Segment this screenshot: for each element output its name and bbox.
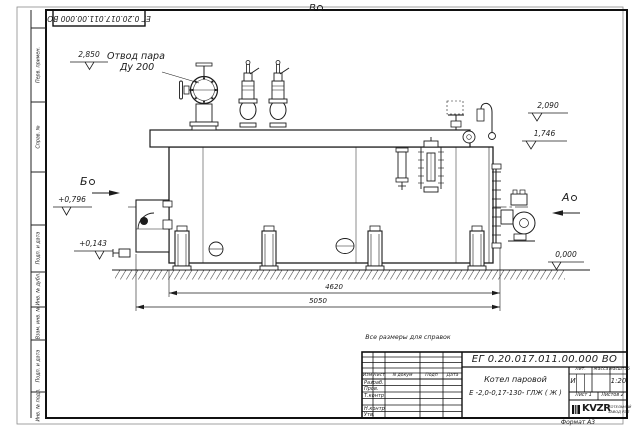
lit-value: И xyxy=(569,378,577,385)
margin-label-sprav-no: Справ. № xyxy=(36,125,41,148)
safety-valve-2 xyxy=(269,61,289,128)
sig-prov: Пров. xyxy=(364,387,379,392)
margin-label-inv-podl: Инв. № подл. xyxy=(36,388,41,421)
drawing-linework xyxy=(0,0,644,430)
header-podp: Подп xyxy=(420,374,443,379)
view-index-circle xyxy=(571,195,577,201)
boiler-body xyxy=(150,130,493,263)
burner-assembly xyxy=(492,164,535,248)
company-line2: ЗАВОД РЭП xyxy=(608,411,629,415)
sig-nkontr: Н.контр xyxy=(364,407,385,412)
view-label-top: В xyxy=(309,4,323,15)
front-box xyxy=(113,200,172,257)
scale-header: Масштаб xyxy=(609,368,627,373)
sheet-cell: Лист 1 xyxy=(569,393,598,398)
sig-tkontr: Т.контр xyxy=(364,394,384,399)
logo-icon xyxy=(572,405,580,414)
sig-razrab: Разраб. xyxy=(364,381,384,386)
title-doc-number: ЕГ 0.20.017.011.00.000 ВО xyxy=(462,355,627,366)
format-note: Формат А3 xyxy=(548,420,608,426)
reference-note: Все размеры для справок xyxy=(362,335,454,342)
margin-label-podp-data-1: Подп. и дата xyxy=(36,232,41,265)
view-index-circle xyxy=(89,179,95,185)
logo-text: KVZR xyxy=(582,404,610,415)
header-data: Дата xyxy=(443,374,462,379)
elevation-1746: 1,746 xyxy=(522,130,567,138)
view-label-right: А xyxy=(562,192,577,204)
safety-valves xyxy=(239,61,289,128)
view-letter-v: В xyxy=(309,3,316,14)
sig-utv: Утв. xyxy=(364,413,375,418)
scale-value: 1:20 xyxy=(610,378,627,385)
view-index-circle xyxy=(317,5,323,11)
margin-label-perv-primen: Перв. примен. xyxy=(36,47,41,83)
elevation-0000: 0,000 xyxy=(547,251,585,259)
elevation-plus0796: +0,796 xyxy=(52,196,92,204)
ground-line xyxy=(112,270,590,280)
dimension-4620: 4620 xyxy=(304,284,364,291)
safety-valve-1 xyxy=(239,61,259,128)
drawing-sheet: ЕГ 0.20.017.011.00.000 ВО Перв. примен. … xyxy=(0,0,644,430)
steam-callout-line1: Отвод пара xyxy=(107,52,165,62)
elevation-plus0143: +0,143 xyxy=(73,240,113,248)
elevation-2850: 2,850 xyxy=(70,51,108,59)
view-label-left: Б xyxy=(80,176,95,188)
title-name-line1: Котел паровой xyxy=(462,376,569,384)
margin-label-podp-data-2: Подп. и дата xyxy=(36,350,41,383)
steam-callout-line2: Ду 200 xyxy=(120,63,154,73)
sheets-cell: Листов 2 xyxy=(598,393,627,398)
top-stamp-text: ЕГ 0.20.017.011.00.000 ВО xyxy=(47,14,150,22)
view-letter-a: А xyxy=(562,191,570,204)
margin-label-vzam-inv: Взам. инв. № xyxy=(36,307,41,340)
margin-label-inv-dubl: Инв. № дубл. xyxy=(36,273,41,306)
steam-valve xyxy=(180,63,219,130)
lit-header: Лит. xyxy=(569,368,592,373)
mass-header: Масса xyxy=(592,368,610,373)
dimension-5050: 5050 xyxy=(288,298,348,305)
view-letter-b: Б xyxy=(80,175,88,188)
elevation-2090: 2,090 xyxy=(528,102,568,110)
title-name-line2: Е -2,0-0,17-130- ГЛЖ ( Ж ) xyxy=(462,390,569,397)
header-dokum: N докум xyxy=(385,374,420,379)
